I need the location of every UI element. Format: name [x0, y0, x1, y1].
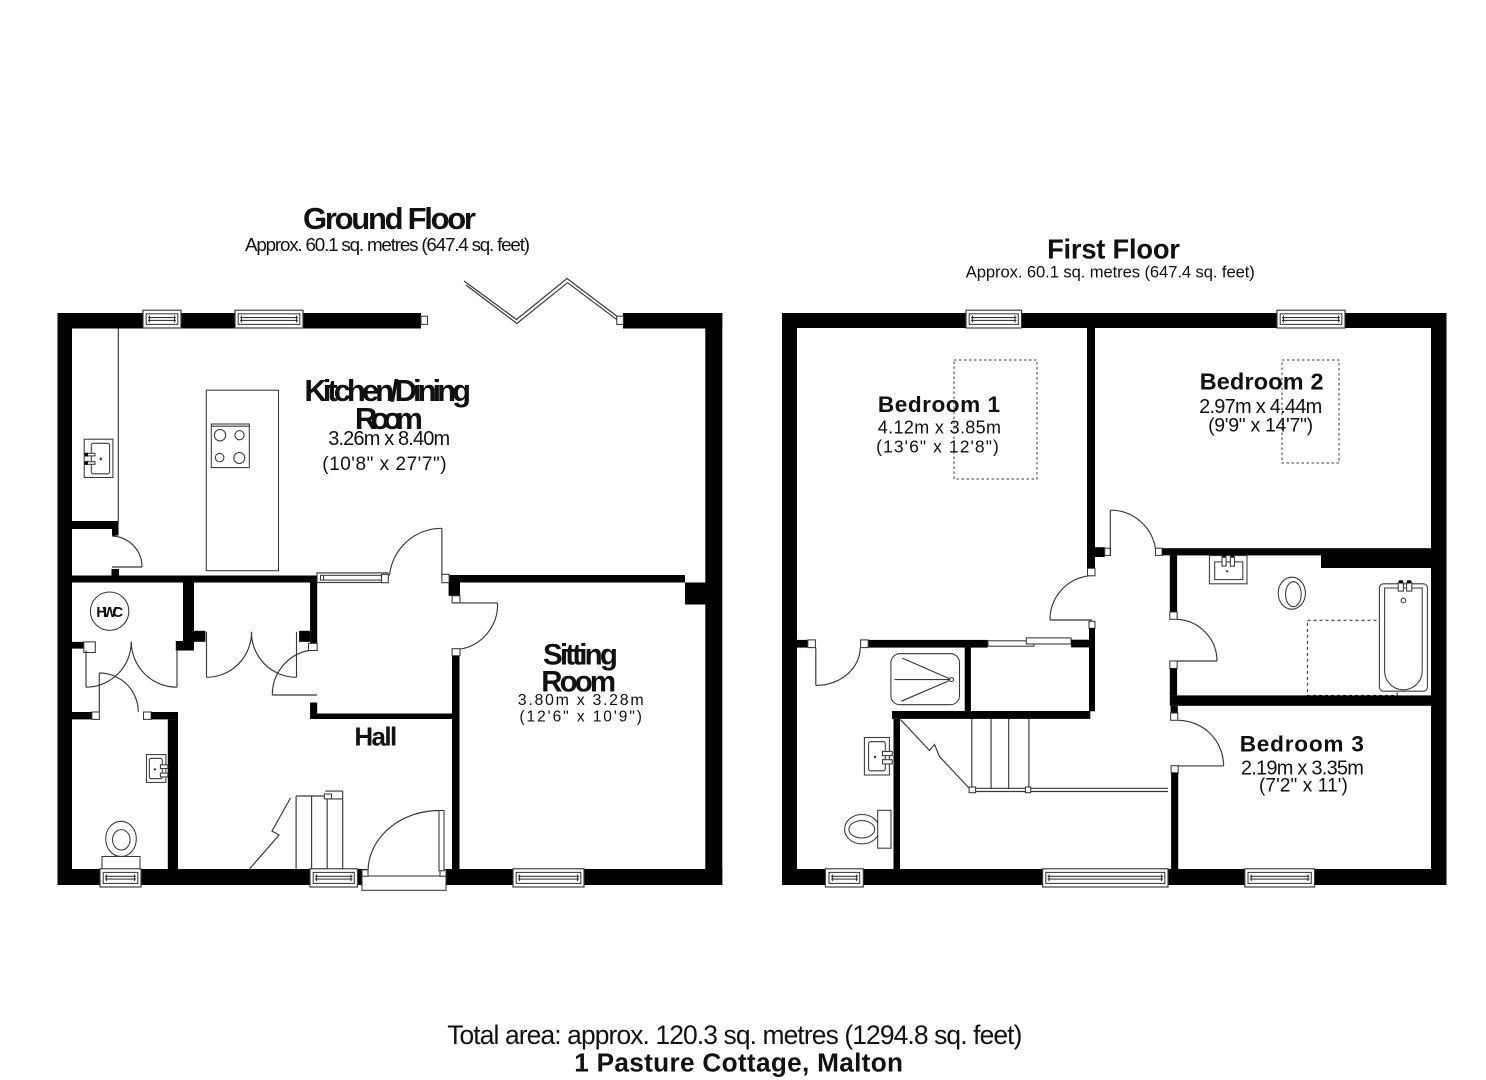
svg-text:(7'2" x 11'): (7'2" x 11'): [1259, 776, 1348, 797]
svg-text:Bedroom 1: Bedroom 1: [878, 392, 1000, 417]
svg-text:Total area: approx. 120.3 sq.: Total area: approx. 120.3 sq. metres (12…: [447, 1020, 1022, 1050]
svg-text:Bedroom 2: Bedroom 2: [1200, 368, 1324, 394]
svg-text:Approx. 60.1 sq. metres (647.4: Approx. 60.1 sq. metres (647.4 sq. feet): [966, 263, 1255, 282]
svg-text:(13'6" x 12'8"): (13'6" x 12'8"): [876, 437, 999, 457]
svg-text:First Floor: First Floor: [1047, 234, 1180, 265]
svg-text:Bedroom 3: Bedroom 3: [1240, 732, 1364, 757]
svg-text:3.26m x 8.40m: 3.26m x 8.40m: [328, 428, 450, 450]
svg-text:1 Pasture Cottage, Malton: 1 Pasture Cottage, Malton: [574, 1048, 903, 1078]
svg-text:3.80m x 3.28m: 3.80m x 3.28m: [518, 692, 644, 709]
svg-text:Approx. 60.1 sq. metres (647.4: Approx. 60.1 sq. metres (647.4 sq. feet): [245, 234, 530, 255]
svg-text:(9'9" x 14'7"): (9'9" x 14'7"): [1208, 415, 1313, 437]
svg-text:4.12m x 3.85m: 4.12m x 3.85m: [878, 418, 1001, 438]
svg-text:Ground Floor: Ground Floor: [303, 201, 476, 236]
svg-text:HWC: HWC: [96, 604, 123, 621]
svg-text:(12'6" x 10'9"): (12'6" x 10'9"): [519, 708, 642, 725]
svg-text:Hall: Hall: [354, 721, 397, 751]
svg-text:(10'8" x 27'7"): (10'8" x 27'7"): [322, 454, 446, 475]
